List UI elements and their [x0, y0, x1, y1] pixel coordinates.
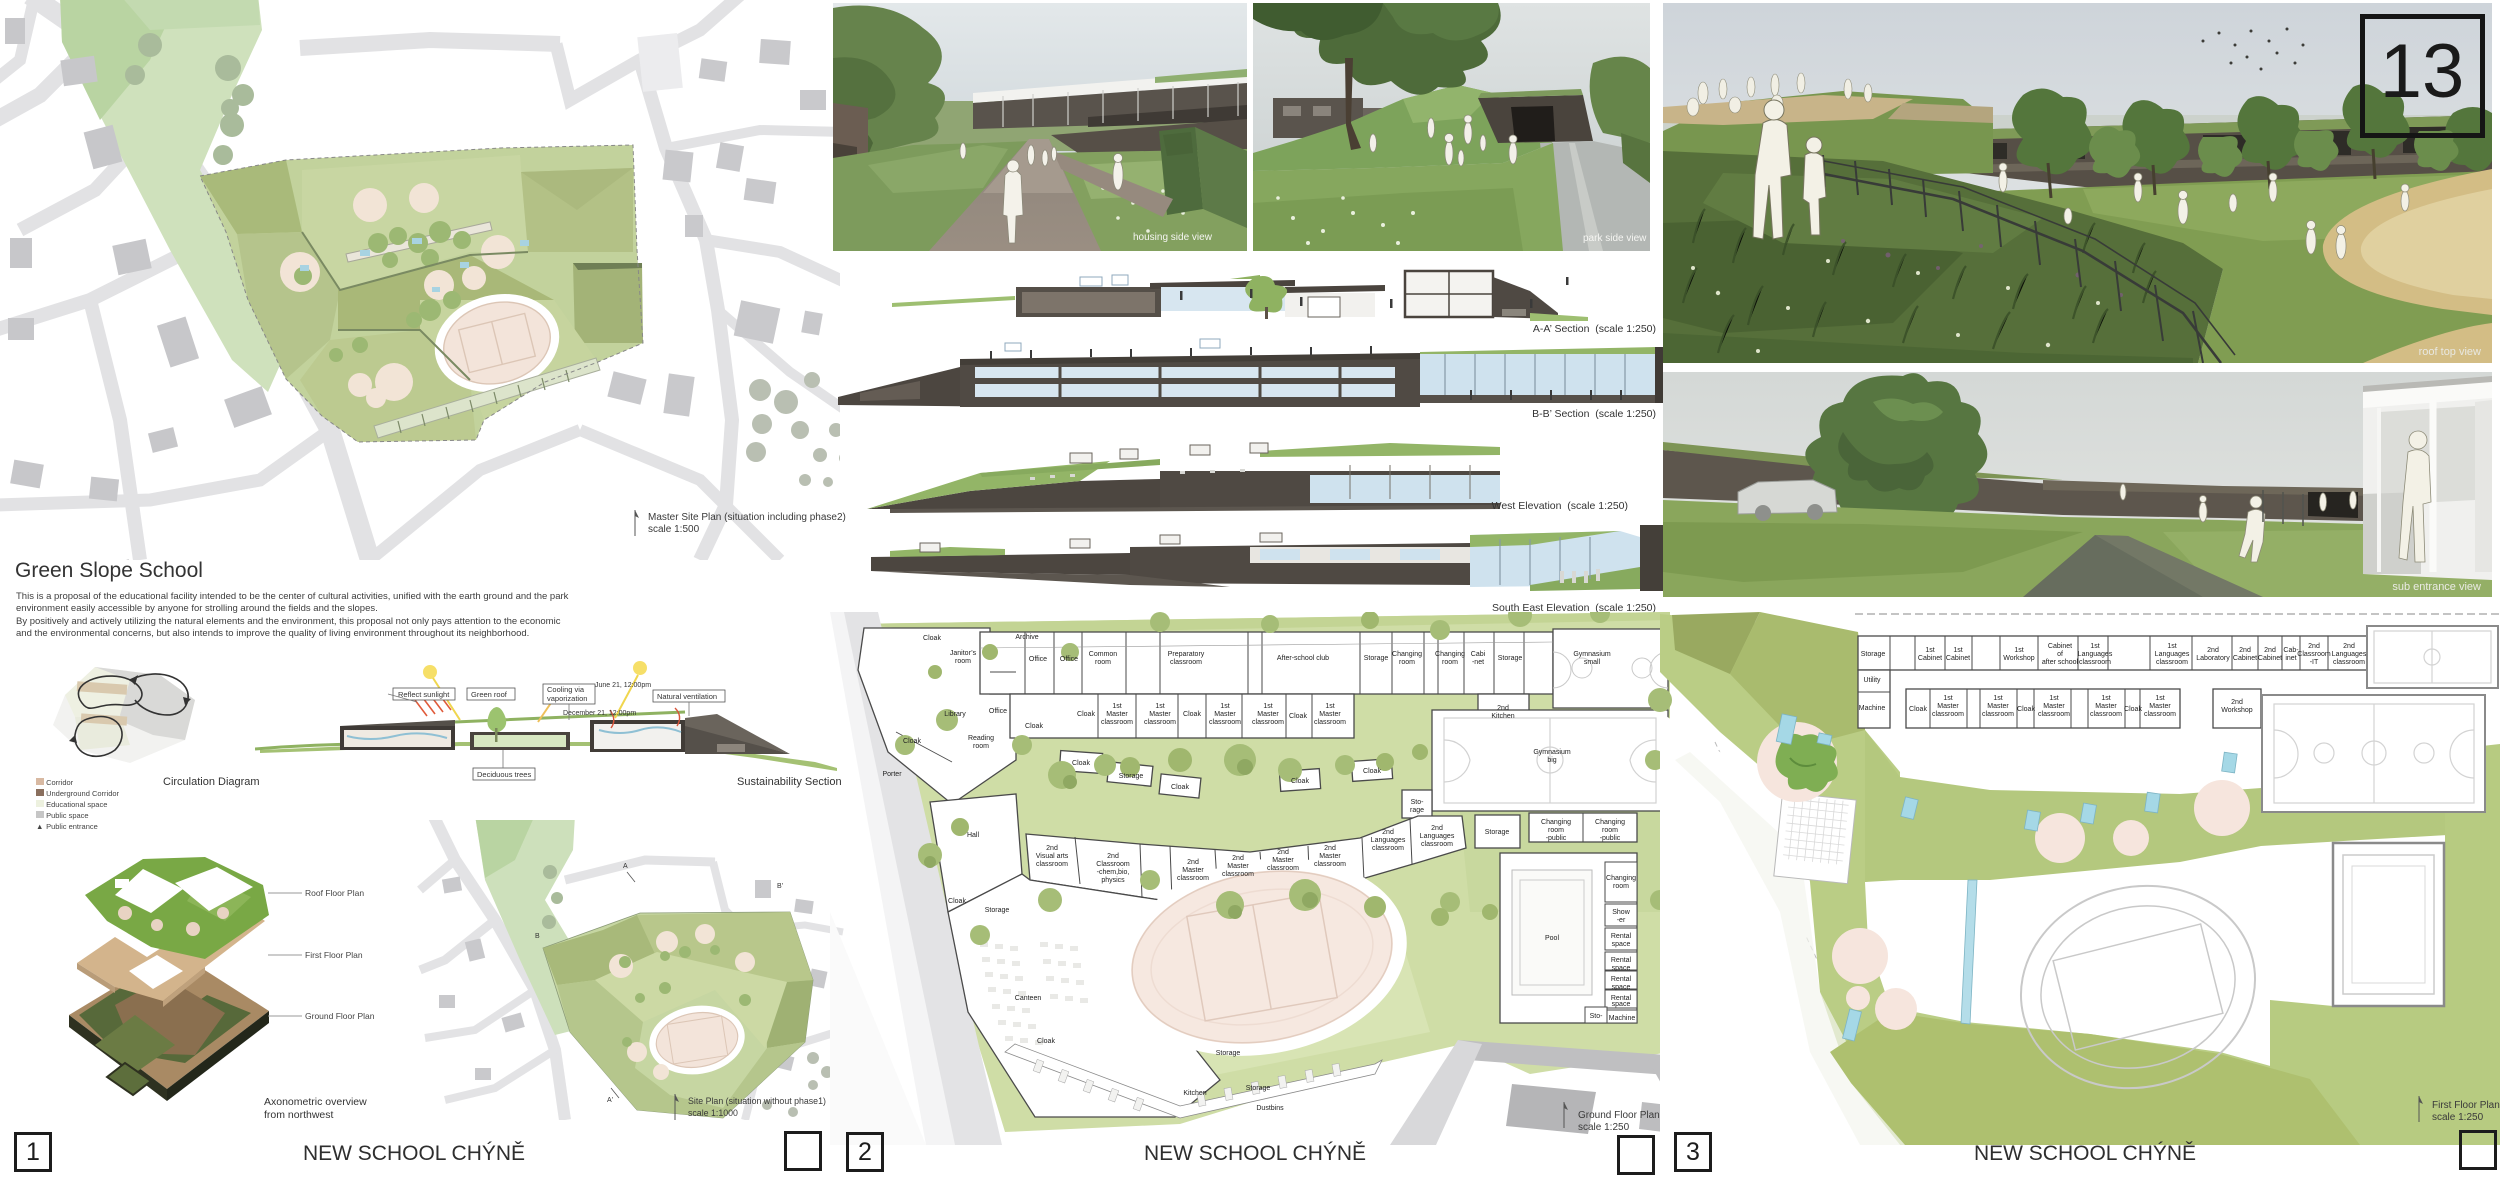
- svg-text:2nd: 2nd: [2231, 699, 2243, 706]
- svg-text:2nd: 2nd: [1107, 853, 1119, 860]
- svg-text:sub entrance view: sub entrance view: [2392, 581, 2481, 593]
- svg-text:Janitor’s: Janitor’s: [950, 650, 977, 657]
- svg-text:roof top view: roof top view: [2419, 346, 2481, 358]
- svg-text:2nd: 2nd: [1232, 855, 1244, 862]
- svg-text:Languages: Languages: [1420, 833, 1455, 840]
- svg-text:Kitchen: Kitchen: [1183, 1090, 1206, 1097]
- svg-text:Cloak: Cloak: [1072, 760, 1090, 767]
- svg-text:Show: Show: [1612, 909, 1630, 916]
- svg-text:room: room: [1442, 659, 1458, 666]
- svg-text:Kitchen: Kitchen: [1491, 713, 1514, 720]
- svg-text:Changing: Changing: [1541, 819, 1571, 826]
- svg-text:Changing: Changing: [1595, 819, 1625, 826]
- svg-text:1st: 1st: [2014, 647, 2023, 654]
- svg-text:Master: Master: [1319, 853, 1341, 860]
- svg-text:1st: 1st: [1112, 703, 1121, 710]
- svg-text:Classroom: Classroom: [2297, 651, 2331, 658]
- svg-text:1st: 1st: [1953, 647, 1962, 654]
- svg-text:1st: 1st: [1925, 647, 1934, 654]
- svg-text:vaporization: vaporization: [547, 694, 587, 703]
- svg-text:2nd: 2nd: [2264, 647, 2276, 654]
- svg-text:classroom: classroom: [1177, 875, 1209, 882]
- svg-text:Cloak: Cloak: [1025, 723, 1043, 730]
- svg-text:2nd: 2nd: [1324, 845, 1336, 852]
- svg-text:Laboratory: Laboratory: [2196, 655, 2230, 662]
- svg-text:Storage: Storage: [1861, 651, 1886, 658]
- svg-text:classroom: classroom: [1421, 841, 1453, 848]
- svg-text:Languages: Languages: [2155, 651, 2190, 658]
- svg-text:Master: Master: [1106, 711, 1128, 718]
- svg-text:2nd: 2nd: [1431, 825, 1443, 832]
- svg-text:Cloak: Cloak: [923, 635, 941, 642]
- svg-text:Cloak: Cloak: [1291, 778, 1309, 785]
- svg-text:classroom: classroom: [1222, 871, 1254, 878]
- svg-text:small: small: [1584, 659, 1601, 666]
- svg-text:Office: Office: [1060, 656, 1078, 663]
- svg-text:1st: 1st: [1993, 695, 2002, 702]
- svg-text:1st: 1st: [2049, 695, 2058, 702]
- svg-text:space: space: [1612, 1001, 1631, 1008]
- svg-text:classroom: classroom: [1209, 719, 1241, 726]
- svg-text:of: of: [2057, 651, 2063, 658]
- svg-text:housing side view: housing side view: [1133, 232, 1213, 243]
- svg-text:Deciduous trees: Deciduous trees: [477, 770, 531, 779]
- svg-text:classroom: classroom: [1314, 861, 1346, 868]
- svg-text:Visual arts: Visual arts: [1036, 853, 1069, 860]
- svg-text:2nd: 2nd: [2308, 643, 2320, 650]
- svg-text:inet: inet: [2285, 655, 2296, 662]
- svg-text:A: A: [623, 863, 628, 870]
- svg-text:Storage: Storage: [1364, 655, 1389, 662]
- svg-text:1st: 1st: [1325, 703, 1334, 710]
- svg-text:Cabinet: Cabinet: [1918, 655, 1942, 662]
- svg-text:Storage: Storage: [1246, 1085, 1271, 1092]
- svg-text:Master: Master: [1937, 703, 1959, 710]
- svg-text:Cabi: Cabi: [1471, 651, 1486, 658]
- svg-text:Rental: Rental: [1611, 933, 1632, 940]
- svg-text:Cabinet: Cabinet: [2048, 643, 2072, 650]
- svg-text:2nd: 2nd: [2343, 643, 2355, 650]
- svg-text:Utility: Utility: [1863, 677, 1881, 684]
- svg-text:physics: physics: [1101, 877, 1125, 884]
- svg-text:-net: -net: [1472, 659, 1484, 666]
- svg-text:Master: Master: [1987, 703, 2009, 710]
- svg-text:space: space: [1612, 984, 1631, 991]
- svg-text:1st: 1st: [1220, 703, 1229, 710]
- svg-text:Storage: Storage: [1498, 655, 1523, 662]
- svg-text:Master: Master: [2095, 703, 2117, 710]
- svg-text:classroom: classroom: [2079, 659, 2111, 666]
- svg-text:West Elevation (scale 1:250): West Elevation (scale 1:250): [1492, 500, 1628, 512]
- svg-text:Master: Master: [1149, 711, 1171, 718]
- svg-text:Common: Common: [1089, 651, 1118, 658]
- svg-text:Cooling via: Cooling via: [547, 685, 585, 694]
- svg-text:B: B: [535, 933, 540, 940]
- svg-text:Cloak: Cloak: [1909, 706, 1927, 713]
- svg-text:June 21, 12:00pm: June 21, 12:00pm: [595, 682, 651, 689]
- svg-text:-public: -public: [1546, 835, 1567, 842]
- svg-text:Preparatory: Preparatory: [1168, 651, 1205, 658]
- svg-text:2nd: 2nd: [2239, 647, 2251, 654]
- svg-text:Sto-: Sto-: [1590, 1013, 1604, 1020]
- svg-text:Green roof: Green roof: [471, 690, 508, 699]
- svg-text:Machine: Machine: [1609, 1015, 1636, 1022]
- svg-text:Storage: Storage: [1216, 1050, 1241, 1057]
- svg-text:1st: 1st: [1155, 703, 1164, 710]
- svg-text:Office: Office: [1029, 656, 1047, 663]
- svg-text:2nd: 2nd: [1277, 849, 1289, 856]
- svg-text:Library: Library: [944, 711, 966, 718]
- svg-text:1st: 1st: [1263, 703, 1272, 710]
- svg-text:Cloak: Cloak: [2124, 706, 2142, 713]
- svg-text:Changing: Changing: [1392, 651, 1422, 658]
- svg-text:room: room: [1095, 659, 1111, 666]
- svg-text:Cloak: Cloak: [1289, 713, 1307, 720]
- svg-text:Master: Master: [2043, 703, 2065, 710]
- svg-text:classroom: classroom: [2144, 711, 2176, 718]
- svg-text:Cloak: Cloak: [1171, 784, 1189, 791]
- svg-text:December 21, 12:00pm: December 21, 12:00pm: [563, 710, 636, 717]
- svg-text:-chem,bio,: -chem,bio,: [1097, 869, 1130, 876]
- svg-text:-er: -er: [1617, 917, 1626, 924]
- svg-text:B-B’ Section (scale 1:250): B-B’ Section (scale 1:250): [1532, 408, 1656, 420]
- svg-text:Cloak: Cloak: [948, 898, 966, 905]
- svg-text:Changing: Changing: [1606, 875, 1636, 882]
- svg-text:Master: Master: [1257, 711, 1279, 718]
- svg-text:classroom: classroom: [1144, 719, 1176, 726]
- svg-text:1st: 1st: [1943, 695, 1952, 702]
- svg-text:After-school club: After-school club: [1277, 655, 1329, 662]
- svg-text:room: room: [1548, 827, 1564, 834]
- svg-text:classroom: classroom: [1101, 719, 1133, 726]
- svg-text:room: room: [955, 658, 971, 665]
- svg-text:classroom: classroom: [1036, 861, 1068, 868]
- svg-text:Languages: Languages: [1371, 837, 1406, 844]
- svg-text:rage: rage: [1410, 807, 1424, 814]
- svg-text:Gymnasium: Gymnasium: [1533, 749, 1571, 756]
- svg-text:room: room: [1613, 883, 1629, 890]
- svg-text:big: big: [1547, 757, 1556, 764]
- svg-text:2nd: 2nd: [1382, 829, 1394, 836]
- svg-text:Gymnasium: Gymnasium: [1573, 651, 1611, 658]
- svg-text:Cloak: Cloak: [1183, 711, 1201, 718]
- svg-text:Rental: Rental: [1611, 976, 1632, 983]
- svg-text:B': B': [777, 883, 783, 890]
- svg-text:2nd: 2nd: [1497, 705, 1509, 712]
- svg-text:after school: after school: [2042, 659, 2079, 666]
- svg-text:Cabinet: Cabinet: [2233, 655, 2257, 662]
- svg-text:Archive: Archive: [1015, 634, 1038, 641]
- svg-text:Cloak: Cloak: [903, 738, 921, 745]
- svg-text:Storage: Storage: [1119, 773, 1144, 780]
- svg-text:classroom: classroom: [2038, 711, 2070, 718]
- svg-text:classroom: classroom: [1314, 719, 1346, 726]
- svg-text:1st: 1st: [2101, 695, 2110, 702]
- svg-text:Master: Master: [1227, 863, 1249, 870]
- svg-text:classroom: classroom: [1372, 845, 1404, 852]
- svg-text:room: room: [1602, 827, 1618, 834]
- svg-text:classroom: classroom: [2333, 659, 2365, 666]
- svg-text:2nd: 2nd: [2207, 647, 2219, 654]
- svg-text:Master: Master: [1319, 711, 1341, 718]
- svg-text:Master: Master: [2149, 703, 2171, 710]
- svg-text:-IT: -IT: [2310, 659, 2319, 666]
- svg-text:room: room: [973, 743, 989, 750]
- svg-text:Office: Office: [989, 708, 1007, 715]
- svg-text:Changing: Changing: [1435, 651, 1465, 658]
- svg-text:2nd: 2nd: [1187, 859, 1199, 866]
- svg-text:classroom: classroom: [2156, 659, 2188, 666]
- svg-text:Languages: Languages: [2332, 651, 2367, 658]
- svg-text:Reflect sunlight: Reflect sunlight: [398, 690, 450, 699]
- svg-text:classroom: classroom: [1252, 719, 1284, 726]
- svg-text:Workshop: Workshop: [2003, 655, 2034, 662]
- svg-text:park side view: park side view: [1583, 233, 1647, 244]
- svg-text:Sto-: Sto-: [1411, 799, 1425, 806]
- svg-text:Reading: Reading: [968, 735, 994, 742]
- svg-text:Canteen: Canteen: [1015, 995, 1042, 1002]
- svg-text:Dustbins: Dustbins: [1256, 1105, 1284, 1112]
- svg-text:Storage: Storage: [1485, 829, 1510, 836]
- svg-text:room: room: [1399, 659, 1415, 666]
- svg-text:Machine: Machine: [1859, 705, 1886, 712]
- svg-text:-public: -public: [1600, 835, 1621, 842]
- svg-text:1st: 1st: [2167, 643, 2176, 650]
- svg-text:Cloak: Cloak: [1037, 1038, 1055, 1045]
- svg-text:Cloak: Cloak: [2017, 706, 2035, 713]
- svg-text:Cabinet: Cabinet: [2258, 655, 2282, 662]
- svg-text:1st: 1st: [2155, 695, 2164, 702]
- svg-text:Workshop: Workshop: [2221, 707, 2252, 714]
- svg-text:Hall: Hall: [967, 832, 980, 839]
- svg-text:Storage: Storage: [985, 907, 1010, 914]
- svg-text:Rental: Rental: [1611, 957, 1632, 964]
- svg-text:classroom: classroom: [1982, 711, 2014, 718]
- svg-text:Porter: Porter: [882, 771, 902, 778]
- svg-text:classroom: classroom: [1932, 711, 1964, 718]
- svg-text:Cloak: Cloak: [1363, 768, 1381, 775]
- svg-text:Cloak: Cloak: [1077, 711, 1095, 718]
- svg-text:1st: 1st: [2090, 643, 2099, 650]
- svg-text:Pool: Pool: [1545, 935, 1559, 942]
- svg-text:Classroom: Classroom: [1096, 861, 1130, 868]
- svg-text:classroom: classroom: [1170, 659, 1202, 666]
- svg-text:Master: Master: [1214, 711, 1236, 718]
- svg-text:2nd: 2nd: [1046, 845, 1058, 852]
- svg-text:classroom: classroom: [2090, 711, 2122, 718]
- svg-text:Cabinet: Cabinet: [1946, 655, 1970, 662]
- svg-text:space: space: [1612, 941, 1631, 948]
- svg-text:Master: Master: [1272, 857, 1294, 864]
- svg-text:A-A’ Section (scale 1:250): A-A’ Section (scale 1:250): [1533, 323, 1656, 335]
- svg-text:Languages: Languages: [2078, 651, 2113, 658]
- svg-text:Master: Master: [1182, 867, 1204, 874]
- svg-text:A': A': [607, 1097, 613, 1104]
- svg-text:classroom: classroom: [1267, 865, 1299, 872]
- svg-text:space: space: [1612, 965, 1631, 972]
- svg-text:Natural ventilation: Natural ventilation: [657, 692, 717, 701]
